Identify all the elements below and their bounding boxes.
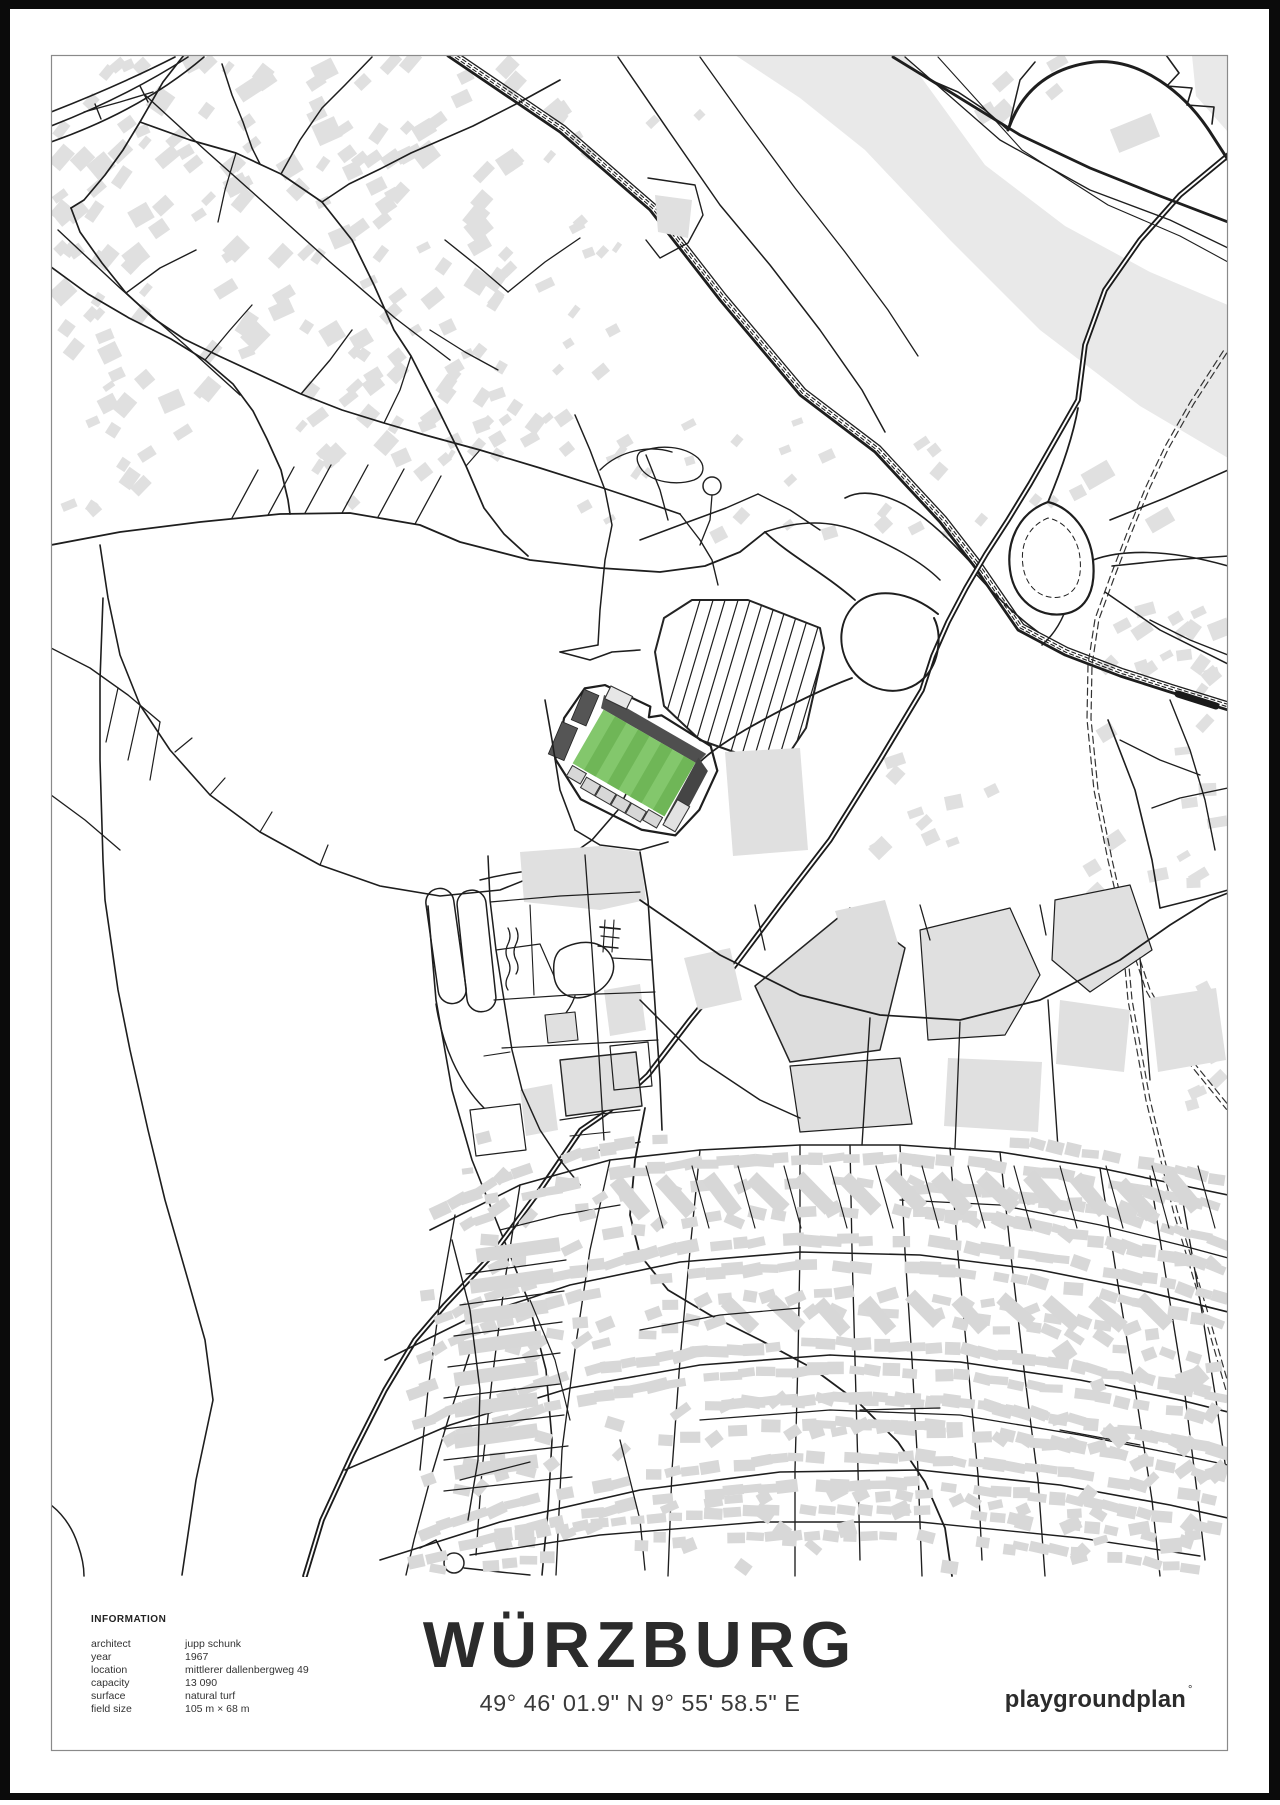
svg-text:natural turf: natural turf xyxy=(185,1690,235,1702)
svg-text:jupp schunk: jupp schunk xyxy=(184,1638,242,1650)
svg-text:mittlerer dallenbergweg 49: mittlerer dallenbergweg 49 xyxy=(185,1664,309,1676)
svg-text:WÜRZBURG: WÜRZBURG xyxy=(423,1608,857,1681)
svg-text:°: ° xyxy=(1188,1684,1192,1696)
svg-text:105 m × 68 m: 105 m × 68 m xyxy=(185,1703,250,1715)
svg-text:INFORMATION: INFORMATION xyxy=(91,1614,166,1625)
svg-text:field size: field size xyxy=(91,1703,132,1715)
svg-text:capacity: capacity xyxy=(91,1677,130,1689)
svg-text:surface: surface xyxy=(91,1690,126,1702)
svg-text:1967: 1967 xyxy=(185,1651,209,1663)
svg-text:year: year xyxy=(91,1651,112,1663)
svg-text:49° 46' 01.9" N 9° 55' 58.5" E: 49° 46' 01.9" N 9° 55' 58.5" E xyxy=(480,1690,801,1716)
svg-text:13 090: 13 090 xyxy=(185,1677,217,1689)
svg-text:architect: architect xyxy=(91,1638,131,1650)
svg-text:location: location xyxy=(91,1664,127,1676)
svg-text:playgroundplan: playgroundplan xyxy=(1005,1686,1186,1713)
